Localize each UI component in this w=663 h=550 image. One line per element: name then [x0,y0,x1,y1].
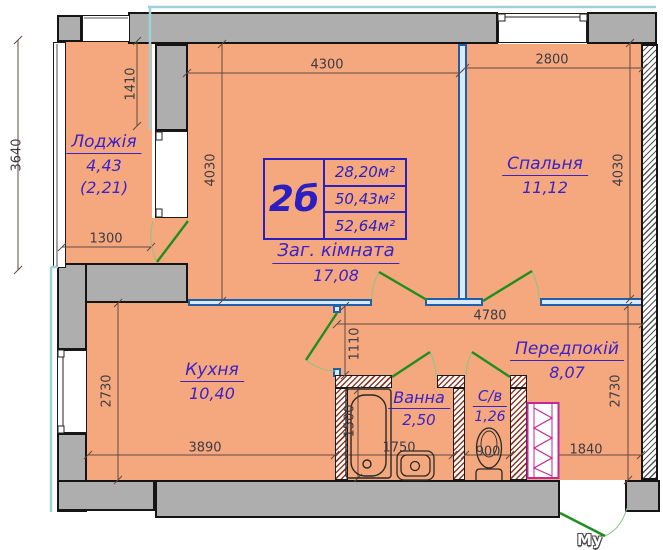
room-label-bath: Ванна 2,50 [388,388,450,429]
apartment-type: 2б [265,160,325,238]
room-label-living: Заг. кімната 17,08 [272,240,399,285]
room-area: 10,40 [180,382,244,403]
apartment-areas: 28,20м² 50,43м² 52,64м² [325,160,405,238]
wc-door [472,352,510,377]
dim-label-1500: 1500 [343,404,358,437]
dim-label-3890: 3890 [188,441,221,456]
room-area: 1,26 [473,407,507,426]
dim-label-4780: 4780 [473,309,506,324]
room-name: Заг. кімната [272,240,399,264]
dim-label-1750: 1750 [382,441,415,456]
room-area: 2,50 [388,409,450,429]
dim-label-2800: 2800 [535,53,568,68]
dim-label-4030-living: 4030 [204,153,219,186]
area-living-total: 28,20м² [325,160,405,187]
room-name: Ванна [388,388,450,409]
room-area: 11,12 [502,176,588,197]
area-overall: 52,64м² [325,213,405,238]
dim-label-1410: 1410 [124,67,139,100]
floor-plan: 2б 28,20м² 50,43м² 52,64м² Лоджія 4,43 (… [0,0,663,550]
room-area: 4,43 [66,154,141,175]
watermark: My House [577,531,663,550]
room-label-wc: С/в 1,26 [473,387,507,426]
room-label-loggia: Лоджія 4,43 (2,21) [66,132,141,197]
dim-label-900: 900 [476,445,501,460]
bath-door [392,352,430,377]
bedroom-door [483,271,532,301]
room-name: Передпокій [510,339,624,361]
room-area: 8,07 [510,361,624,382]
room-area-secondary: (2,21) [66,176,141,197]
room-name: Лоджія [66,132,141,154]
balcony-door-arc [151,221,157,262]
dim-label-1300: 1300 [89,232,122,247]
room-name: Кухня [180,360,244,382]
bedroom-door-arc [532,271,539,300]
room-name: С/в [473,387,507,407]
kitchen-door-arc [306,360,336,371]
vent-shaft-icon [528,403,559,478]
room-name: Спальня [502,154,588,176]
dim-label-3640: 3640 [10,138,25,171]
dim-label-4030-bedroom: 4030 [612,153,627,186]
apartment-info-table: 2б 28,20м² 50,43м² 52,64м² [263,158,407,240]
bath-door-arc [430,352,436,376]
room-label-bedroom: Спальня 11,12 [502,154,588,198]
wc-door-arc [466,352,472,376]
dim-label-2730-kitchen: 2730 [100,374,115,407]
balcony-door [157,221,188,262]
kitchen-door [306,313,337,360]
area-apartment: 50,43м² [325,187,405,214]
room-area: 17,08 [272,264,399,285]
dim-label-4300: 4300 [310,58,343,73]
room-label-hall: Передпокій 8,07 [510,339,624,383]
dim-label-1110: 1110 [348,327,363,360]
dim-label-1840: 1840 [569,443,602,458]
room-label-kitchen: Кухня 10,40 [180,360,244,404]
